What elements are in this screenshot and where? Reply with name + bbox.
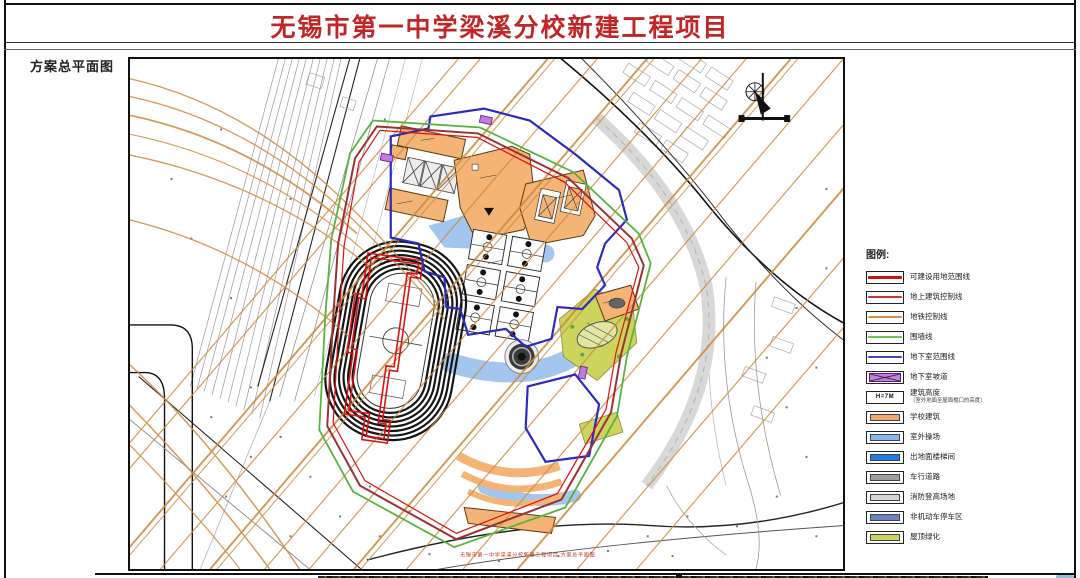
- legend-swatch-line: [866, 351, 904, 364]
- legend-item-label: 地下室坡道: [910, 373, 948, 381]
- legend-item: 围墙线: [866, 327, 1066, 347]
- legend-swatch-hatch: [866, 371, 904, 384]
- legend-item-label: 地下室范围线: [910, 353, 955, 361]
- legend-swatch-fill: [866, 431, 904, 444]
- legend-item-label: 车行道路: [910, 473, 940, 481]
- legend-item: 地下室坡道: [866, 367, 1066, 387]
- legend-item: H=7M建筑高度（室外地面至屋面檐口的高度）: [866, 387, 1066, 407]
- legend-item-label: 建筑高度（室外地面至屋面檐口的高度）: [910, 389, 994, 405]
- legend-swatch-fill: [866, 411, 904, 424]
- legend-item-label: 地铁控制线: [910, 313, 948, 321]
- legend-title: 图例:: [866, 246, 1066, 261]
- legend-item-label: 可建设用地范围线: [910, 273, 970, 281]
- sheet-border-top: [4, 3, 1076, 5]
- legend-swatch-fill: [866, 531, 904, 544]
- legend-item-label: 非机动车停车区: [910, 513, 963, 521]
- legend-item: 学校建筑: [866, 407, 1066, 427]
- legend-item-label: 室外操场: [910, 433, 940, 441]
- legend-item: 地铁控制线: [866, 307, 1066, 327]
- legend-item-label: 消防登高场地: [910, 493, 955, 501]
- site-plan-drawing: [130, 59, 843, 569]
- legend-item: 地上建筑控制线: [866, 287, 1066, 307]
- scheme-plan-label: 方案总平面图: [30, 56, 114, 75]
- legend-item-label: 地上建筑控制线: [910, 293, 963, 301]
- legend-item-label: 出地面楼梯间: [910, 453, 955, 461]
- legend-swatch-line: [866, 311, 904, 324]
- legend-swatch-height: H=7M: [866, 391, 904, 404]
- legend-swatch-fill: [866, 451, 904, 464]
- legend-swatch-line: [866, 271, 904, 284]
- bottom-mark: [676, 574, 682, 578]
- legend-item: 室外操场: [866, 427, 1066, 447]
- legend-swatch-line: [866, 291, 904, 304]
- legend-item: 可建设用地范围线: [866, 267, 1066, 287]
- legend-swatch-fill: [866, 511, 904, 524]
- legend-rows: 可建设用地范围线地上建筑控制线地铁控制线围墙线地下室范围线地下室坡道H=7M建筑…: [866, 267, 1066, 547]
- drawing-sheet: { "sheet": { "title": "无锡市第一中学梁溪分校新建工程项目…: [0, 0, 1080, 578]
- page-title: 无锡市第一中学梁溪分校新建工程项目: [0, 8, 1000, 44]
- sheet-border-left: [4, 0, 6, 578]
- legend-item: 屋顶绿化: [866, 527, 1066, 547]
- bike-shed: [403, 157, 460, 193]
- legend-item: 消防登高场地: [866, 487, 1066, 507]
- plan-caption: 无锡市第一中学梁溪分校新建工程项目 方案总平面图: [460, 551, 595, 559]
- legend-swatch-fill: [866, 491, 904, 504]
- bottom-divider-line: [95, 573, 1076, 575]
- content-top-line: [4, 49, 1076, 50]
- ramp-hatch-icon: [869, 373, 901, 382]
- legend-item: 非机动车停车区: [866, 507, 1066, 527]
- legend-swatch-fill: [866, 471, 904, 484]
- legend-item: 出地面楼梯间: [866, 447, 1066, 467]
- sheet-border-right: [1074, 0, 1076, 578]
- legend-item-label: 学校建筑: [910, 413, 940, 421]
- legend-item: 车行道路: [866, 467, 1066, 487]
- legend-item: 地下室范围线: [866, 347, 1066, 367]
- legend-item-label: 屋顶绿化: [910, 533, 940, 541]
- site-plan-frame: 无锡市第一中学梁溪分校新建工程项目 方案总平面图: [128, 57, 845, 571]
- legend: 图例: 可建设用地范围线地上建筑控制线地铁控制线围墙线地下室范围线地下室坡道H=…: [866, 246, 1066, 547]
- legend-swatch-line: [866, 331, 904, 344]
- legend-item-label: 围墙线: [910, 333, 933, 341]
